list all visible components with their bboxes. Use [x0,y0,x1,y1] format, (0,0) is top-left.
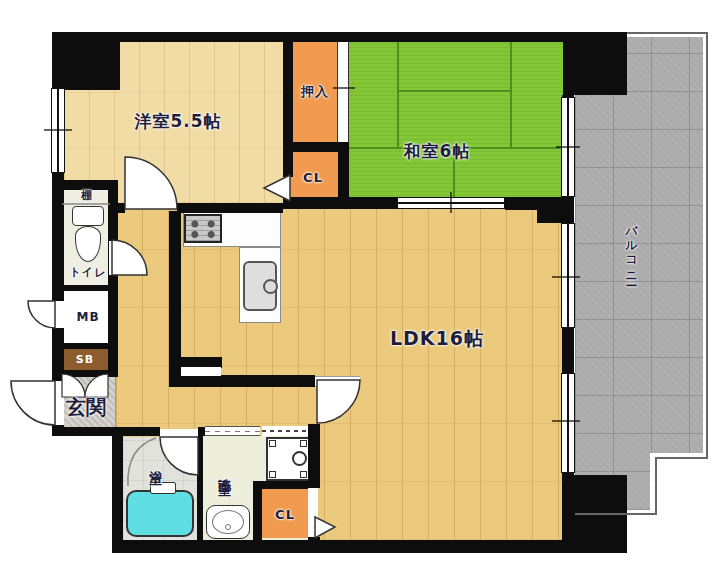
tatami-line [397,42,399,147]
wall [308,424,320,488]
wall [198,427,205,436]
meter-box-door-icon [28,301,55,328]
washer-corner [269,471,276,478]
wall [112,427,123,553]
washer-corner [300,471,307,478]
basin-drain [225,524,231,530]
bathtub-icon [126,490,194,537]
kitchen-hatch [181,367,221,376]
toilet-door-opening [109,241,117,275]
wash-basin-icon [206,505,250,539]
washroom-sliding-door [205,426,260,436]
stove-icon [184,214,222,243]
wall [283,32,293,177]
exterior-cutout [40,436,112,553]
shelf-label: 棚 [81,188,93,203]
ldk-door-opening [315,376,360,387]
wall [52,285,118,291]
tatami-line [510,42,512,147]
washer-corner [300,440,307,447]
oshiire-sliding-door [337,42,349,147]
wall [112,427,160,436]
washer-corner [269,440,276,447]
washer-alcove-opening [262,426,308,436]
western-room-label: 洋室5.5帖 [134,110,221,133]
meter-box-door-opening [52,301,64,328]
wall [308,537,320,545]
ldk-label: LDK16帖 [390,326,484,352]
wall [52,32,627,42]
closet-lower-opening [308,488,318,537]
bath-door-opening [160,429,198,437]
closet-upper-label: CL [303,170,323,185]
japanese-room-label: 和室6帖 [404,140,471,163]
bath-faucet-deck-icon [150,482,176,494]
wall-pillar [562,475,627,545]
wall [283,142,349,152]
wall [177,203,283,213]
toilet-tank-icon [72,206,104,226]
washroom-label: 洗面室 [215,468,233,474]
tatami-line [397,90,510,92]
toilet-label: トイレ [70,265,107,280]
wall [253,481,262,540]
basin-bowl [212,510,244,534]
window [561,97,575,197]
window [397,197,505,209]
balcony-label: バルコニー [623,217,640,282]
wall [52,370,118,377]
wall [197,436,203,541]
washer-door-icon [292,451,307,466]
closet-lower-label: CL [275,507,295,522]
entrance-door-opening [52,381,64,425]
floorplan-canvas: 洋室5.5帖 和室6帖 LDK16帖 押入 CL CL MB SB 棚 トイレ … [0,0,720,576]
entrance-outer-door-icon [11,381,55,425]
shaft-box-label: SB [76,353,94,366]
entrance-label: 玄関 [66,394,106,421]
wall [169,375,315,387]
meter-box-label: MB [76,310,99,324]
oshiire-label: 押入 [301,83,329,101]
japanese-room-floor [349,42,563,200]
wall [112,540,627,553]
window [51,88,65,173]
window [561,373,575,473]
wall-pillar [563,32,627,95]
wall [52,343,118,349]
bathroom-label: 浴室 [146,459,164,463]
window [561,223,575,328]
faucet-icon [263,279,278,294]
wall [505,197,563,210]
washing-machine-icon [266,437,310,481]
wall [283,197,397,209]
